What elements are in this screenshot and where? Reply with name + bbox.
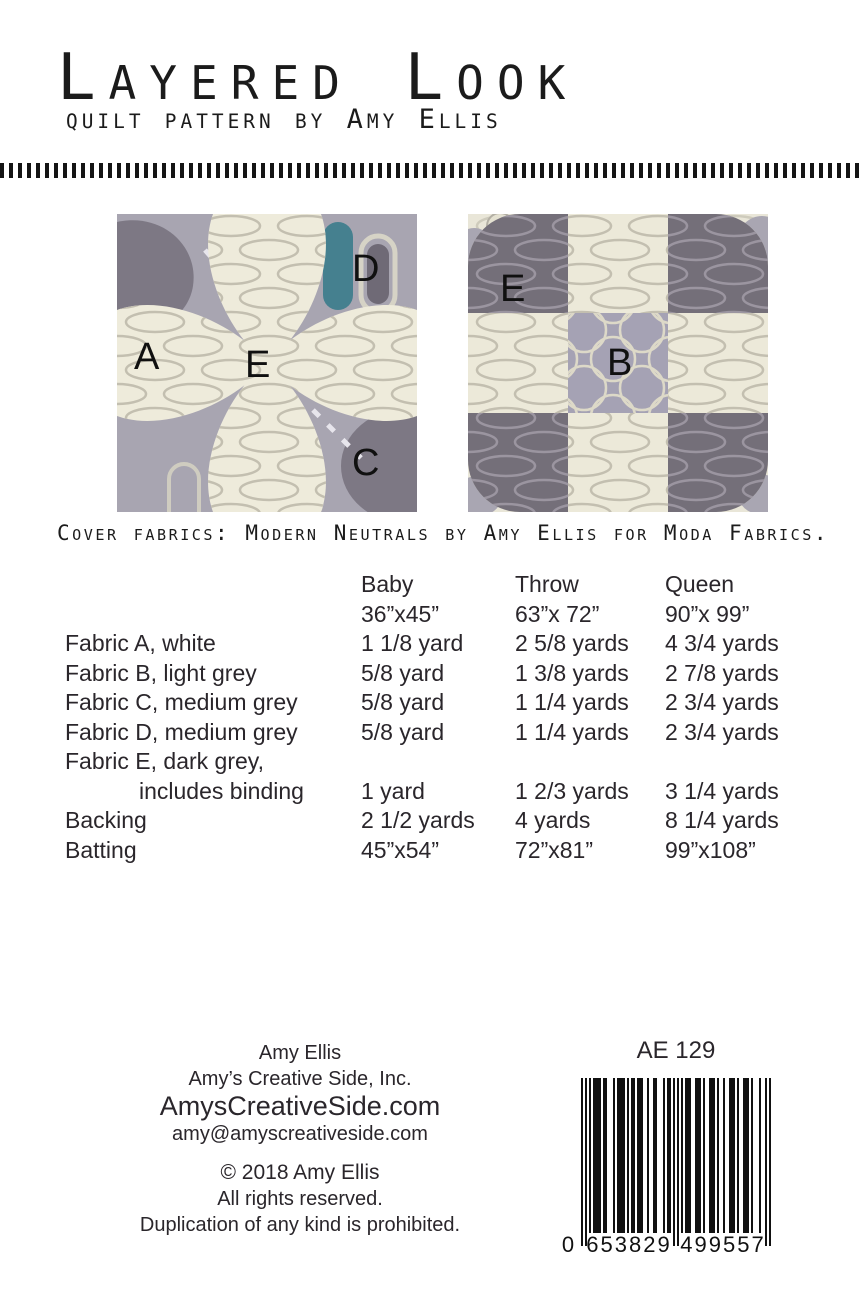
table-row-fabric-b: Fabric B, light grey 5/8 yard 1 3/8 yard… [65,659,807,689]
barcode-digit-right: 499557 [680,1232,765,1256]
product-code: AE 129 [560,1038,792,1064]
rights-line: All rights reserved. [60,1186,540,1212]
quilt-pattern-back-cover: LAYERED LOOK QUILT PATTERN BY AMY ELLIS [0,0,862,1312]
fabric-label-a: A [134,338,159,376]
publisher-block: Amy Ellis Amy’s Creative Side, Inc. Amys… [60,1040,540,1238]
striped-divider [0,163,862,178]
duplication-line: Duplication of any kind is prohibited. [60,1212,540,1238]
fabric-label-b: B [607,344,632,382]
table-row-batting: Batting 45”x54” 72”x81” 99”x108” [65,836,807,866]
materials-table: Baby 36”x45” Throw 63”x 72” Queen 90”x 9… [65,570,807,865]
copyright-line: © 2018 Amy Ellis [60,1160,540,1186]
website-url: AmysCreativeSide.com [60,1092,540,1121]
column-header-baby: Baby 36”x45” [361,570,515,629]
cover-fabrics-caption: COVER FABRICS: MODERN NEUTRALS BY AMY EL… [57,521,829,548]
barcode-digit-left: 653829 [586,1232,671,1256]
table-row-backing: Backing 2 1/2 yards 4 yards 8 1/4 yards [65,806,807,836]
table-row-fabric-a: Fabric A, white 1 1/8 yard 2 5/8 yards 4… [65,629,807,659]
column-header-queen: Queen 90”x 99” [665,570,807,629]
author-name: Amy Ellis [60,1040,540,1066]
barcode: 0 653829 499557 [559,1078,771,1256]
table-row-fabric-c: Fabric C, medium grey 5/8 yard 1 1/4 yar… [65,688,807,718]
table-header-row: Baby 36”x45” Throw 63”x 72” Queen 90”x 9… [65,570,807,629]
table-header-spacer [65,570,361,629]
table-row-fabric-d: Fabric D, medium grey 5/8 yard 1 1/4 yar… [65,718,807,748]
pattern-title: LAYERED LOOK [57,46,578,115]
company-name: Amy’s Creative Side, Inc. [60,1066,540,1092]
barcode-digit-lead: 0 [562,1232,576,1256]
fabric-label-c: C [352,444,379,482]
table-row-fabric-e: Fabric E, dark grey, includes binding 1 … [65,747,807,806]
column-header-throw: Throw 63”x 72” [515,570,665,629]
fabric-label-e-left: E [245,346,270,384]
pattern-subtitle: QUILT PATTERN BY AMY ELLIS [66,106,502,135]
fabric-label-d: D [352,250,379,288]
email-address: amy@amyscreativeside.com [60,1121,540,1147]
barcode-graphic: 0 653829 499557 [559,1078,771,1256]
fabric-label-e-right: E [500,270,525,308]
